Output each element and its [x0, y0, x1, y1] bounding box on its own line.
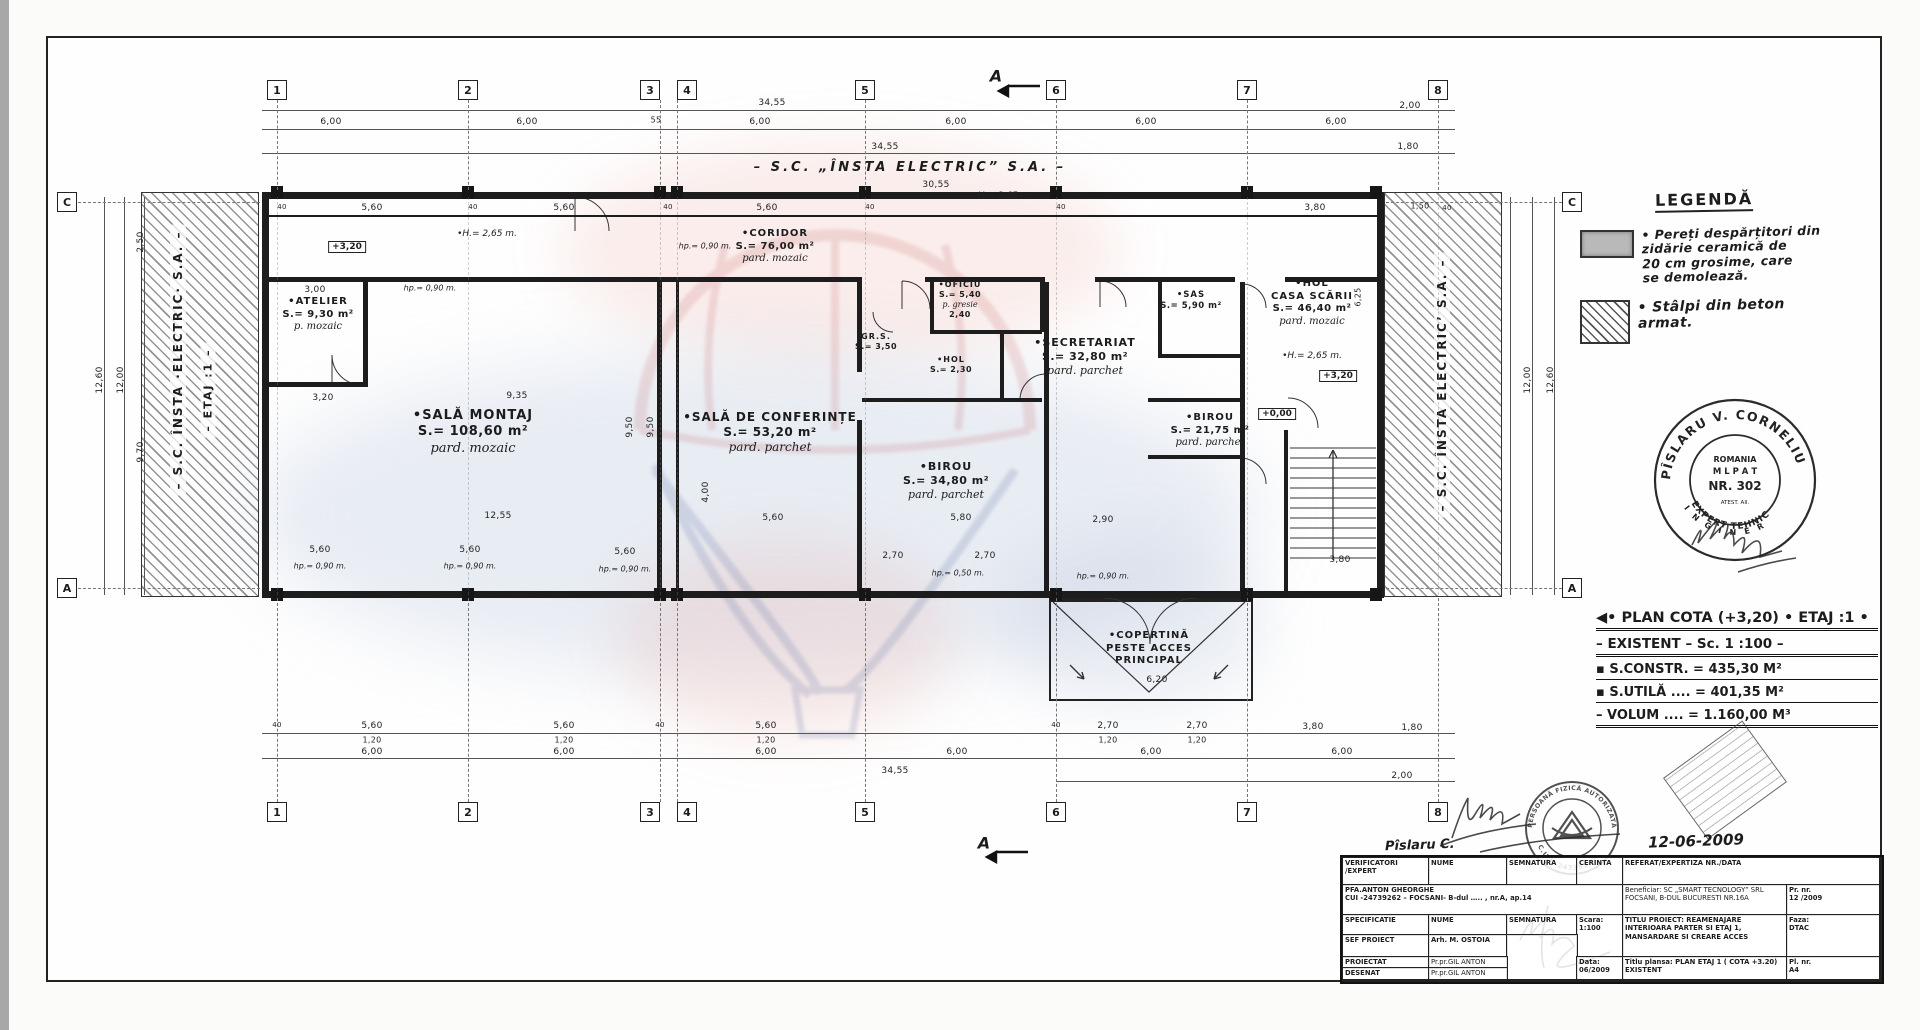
- room-label-line: S.= 108,60 m²: [413, 424, 533, 440]
- room-label-line: S.= 32,80 m²: [1034, 350, 1135, 364]
- room-label-line: pard. mozaic: [736, 253, 815, 266]
- legend-demolish-wall-swatch: [1580, 230, 1634, 258]
- grid-bubble-bottom: 7: [1237, 802, 1257, 822]
- room-label-line: •SALĂ DE CONFERINȚE: [683, 410, 857, 425]
- room-label: GR.S.S.= 3,50: [855, 332, 897, 352]
- top-company-label: – S.C. „ÎNSTA ELECTRIC” S.A. –: [620, 160, 1200, 175]
- dimension-label: 5,60: [614, 547, 635, 557]
- level-marker: +0,00: [1258, 408, 1296, 420]
- title-block-cell: DESENAT: [1342, 967, 1430, 980]
- dimension-label: 5,80: [950, 513, 971, 523]
- grid-extension-line: [1438, 100, 1439, 190]
- title-block-cell: Pl. nr. A4: [1786, 956, 1880, 980]
- grid-bubble-bottom: 6: [1046, 802, 1066, 822]
- dimension-label: 2,70: [1186, 721, 1207, 731]
- dimension-label: 6,00: [320, 117, 341, 127]
- room-label-line: S.= 9,30 m²: [282, 309, 353, 322]
- grid-letter-bubble: A: [1562, 578, 1582, 598]
- grid-extension-line: [865, 100, 866, 190]
- grid-letter-bubble: A: [57, 578, 77, 598]
- room-label-line: •CORIDOR: [736, 228, 815, 241]
- dimension-label: 5,60: [459, 545, 480, 555]
- grid-letter-bubble: C: [1562, 192, 1582, 212]
- dimension-line: [262, 110, 1455, 111]
- dimension-label: 40: [663, 203, 673, 211]
- grid-bubble-top: 2: [458, 80, 478, 100]
- grid-bubble-bottom: 2: [458, 802, 478, 822]
- title-block-cell: NUME: [1428, 914, 1508, 936]
- title-block-cell: SEF PROIECT: [1342, 934, 1430, 958]
- room-label-line: CASA SCĂRII: [1271, 291, 1353, 304]
- grid-extension-line: [1438, 598, 1439, 802]
- dimension-label: 5,60: [756, 203, 777, 213]
- dimension-label: 2,90: [1092, 515, 1113, 525]
- dimension-label: 40: [468, 203, 478, 211]
- dimension-label: 2,50: [136, 231, 146, 252]
- dimension-label: 3,80: [1329, 555, 1350, 565]
- room-label: •SALĂ MONTAJS.= 108,60 m²pard. mozaic: [413, 408, 533, 457]
- dimension-label: 3,20: [312, 393, 333, 403]
- wall-segment: [930, 282, 934, 332]
- dimension-label: 5,60: [361, 203, 382, 213]
- title-block-cell: Data: 06/2009: [1576, 956, 1624, 980]
- legend: LEGENDĂ • Pereți despărțitori din zidări…: [1580, 190, 1880, 344]
- dimension-label: 34,55: [871, 142, 898, 152]
- grid-bubble-bottom: 4: [677, 802, 697, 822]
- grid-bubble-bottom: 3: [640, 802, 660, 822]
- dimension-label: 6,00: [1135, 117, 1156, 127]
- grid-extension-line: [468, 598, 469, 802]
- grid-center-line: [677, 197, 678, 595]
- column-marker: [1370, 186, 1382, 199]
- dimension-line: [1056, 781, 1455, 782]
- right-strip-label: – S.C. ÎNSTA ELECTRIC’ S.A. –: [1434, 253, 1450, 518]
- room-label-line: S.= 46,40 m²: [1271, 303, 1353, 316]
- room-label-line: •ATELIER: [282, 296, 353, 309]
- room-label: •HOLS.= 2,30: [930, 355, 972, 375]
- room-label: •SECRETARIATS.= 32,80 m²pard. parchet: [1034, 336, 1135, 377]
- room-label-line: •SAS: [1160, 290, 1221, 301]
- title-block-cell: SPECIFICATIE: [1342, 914, 1430, 936]
- dimension-label: 6,00: [1140, 747, 1161, 757]
- room-label-line: •BIROU: [1171, 412, 1250, 425]
- wall-segment: [1000, 330, 1004, 400]
- dimension-label: 5,60: [755, 721, 776, 731]
- height-note: hp.= 0,90 m.: [1077, 572, 1130, 581]
- grid-bubble-bottom: 1: [267, 802, 287, 822]
- wall-segment: [1158, 354, 1242, 358]
- title-block-cell: Titlu plansa: PLAN ETAJ 1 ( COTA +3.20) …: [1622, 956, 1788, 980]
- section-marker-bottom: A: [978, 834, 990, 853]
- svg-text:ATEST. AII.: ATEST. AII.: [1721, 500, 1750, 506]
- wall-segment: [930, 330, 1042, 334]
- title-block-cell: Arh. M. OSTOIA: [1428, 934, 1508, 958]
- grid-extension-line: [277, 598, 278, 802]
- title-block-cell: VERIFICATORI /EXPERT: [1342, 857, 1430, 886]
- height-note: hp.= 0,90 m.: [679, 242, 732, 251]
- dimension-label: 40: [1442, 204, 1452, 212]
- wall-segment: [262, 192, 269, 598]
- plan-title: ◀• PLAN COTA (+3,20) • ETAJ :1 •: [1596, 610, 1878, 631]
- dimension-label: 6,00: [755, 747, 776, 757]
- grid-bubble-top: 8: [1428, 80, 1448, 100]
- title-block-cell: Beneficiar: SC „SMART TECNOLOGY” SRL FOC…: [1622, 884, 1788, 916]
- drawing-sheet: – S.C. ÎNSTA ·ELECTRIC· S.A. – – ETAJ :1…: [0, 0, 1920, 1030]
- dimension-label: 12,00: [116, 366, 126, 393]
- wall-segment: [1377, 192, 1384, 598]
- room-label-line: pard. parchet: [903, 488, 989, 502]
- title-block-cell: NUME: [1428, 857, 1508, 886]
- dimension-label: 55: [651, 116, 662, 125]
- section-marker-top: A: [990, 67, 1002, 86]
- dimension-label: 1,20: [554, 736, 573, 745]
- grid-bubble-bottom: 8: [1428, 802, 1448, 822]
- dimension-label: 6,00: [553, 747, 574, 757]
- wall-segment: [262, 591, 1384, 598]
- handwritten-date: 12-06-2009: [1648, 830, 1745, 851]
- dimension-label: 6,00: [1331, 747, 1352, 757]
- dimension-label: 40: [272, 721, 282, 729]
- dimension-label: 12,60: [1546, 366, 1556, 393]
- dimension-line: [262, 758, 1455, 759]
- grid-extension-line: [1247, 100, 1248, 190]
- wall-segment: [862, 398, 1042, 402]
- dimension-line: [104, 197, 105, 595]
- dimension-label: 3,00: [304, 285, 325, 295]
- dimension-line: [1554, 197, 1555, 595]
- title-block-cell: CERINTA: [1576, 857, 1624, 886]
- grid-extension-line: [277, 100, 278, 190]
- wall-segment: [1284, 430, 1288, 598]
- dimension-label: 6,00: [946, 747, 967, 757]
- expert-stamp: PÎSLARU V. CORNELIU I N G I N E R EXPERT…: [1650, 392, 1820, 562]
- grid-extension-line: [1386, 588, 1562, 589]
- room-label-line: •BIROU: [903, 460, 989, 474]
- grid-extension-line: [78, 202, 260, 203]
- room-label-line: S.= 53,20 m²: [683, 425, 857, 440]
- dimension-label: 6,00: [945, 117, 966, 127]
- room-label-line: S.= 3,50: [855, 342, 897, 352]
- title-block-cell: Scara: 1:100: [1576, 914, 1624, 958]
- room-label-line: 2,40: [939, 310, 982, 320]
- grid-bubble-top: 5: [855, 80, 875, 100]
- plan-subtitle: – EXISTENT – Sc. 1 :100 –: [1596, 636, 1878, 657]
- scan-edge: [0, 0, 9, 1030]
- left-strip-label: – S.C. ÎNSTA ·ELECTRIC· S.A. –: [170, 224, 186, 495]
- room-label: •BIROUS.= 21,75 m²pard. parchet: [1171, 412, 1250, 450]
- dimension-label: 40: [655, 721, 665, 729]
- level-marker: +3,20: [1319, 370, 1357, 382]
- dimension-label: 40: [1056, 203, 1066, 211]
- dimension-label: 2,00: [1399, 101, 1420, 111]
- grid-bubble-bottom: 5: [855, 802, 875, 822]
- dimension-label: 34,55: [758, 98, 785, 108]
- dimension-label: 1,20: [1098, 736, 1117, 745]
- grid-extension-line: [78, 588, 260, 589]
- legend-concrete-column-swatch: [1580, 300, 1630, 344]
- room-label-line: pard. parchet: [1034, 364, 1135, 378]
- wall-segment: [1044, 282, 1049, 598]
- dimension-line: [124, 197, 125, 595]
- wall-segment: [262, 215, 1384, 217]
- grid-extension-line: [468, 100, 469, 190]
- title-block-cell: Faza: DTAC: [1786, 914, 1880, 958]
- room-label: •HOLCASA SCĂRIIS.= 46,40 m²pard. mozaic: [1271, 278, 1353, 328]
- wall-segment: [857, 282, 862, 372]
- dimension-label: 40: [1051, 721, 1061, 729]
- dimension-label: 40: [277, 203, 287, 211]
- dimension-line: [1532, 197, 1533, 595]
- wall-segment: [1095, 277, 1235, 282]
- height-note: hp.= 0,90 m.: [404, 284, 457, 293]
- dimension-label: 2,70: [974, 551, 995, 561]
- dimension-label: 5,60: [553, 721, 574, 731]
- wall-segment: [1148, 398, 1244, 402]
- dimension-label: 5,60: [361, 721, 382, 731]
- dimension-label: 6,00: [749, 117, 770, 127]
- dimension-label: 34,55: [881, 766, 908, 776]
- dimension-label: 4,00: [701, 481, 711, 502]
- room-label-line: S.= 5,90 m²: [1160, 301, 1221, 312]
- room-label: •OFICIUS.= 5,40p. gresie2,40: [939, 280, 982, 320]
- room-label-line: •OFICIU: [939, 280, 982, 290]
- room-label-line: pard. parchet: [1171, 437, 1250, 450]
- grid-extension-line: [1247, 598, 1248, 802]
- title-block-cell: Pr.pr.GIL ANTON: [1428, 967, 1508, 980]
- dimension-label: 6,20: [1146, 675, 1167, 685]
- grid-center-line: [1247, 197, 1248, 595]
- room-label-line: S.= 21,75 m²: [1171, 425, 1250, 438]
- dimension-line: [144, 197, 145, 595]
- grid-bubble-top: 3: [640, 80, 660, 100]
- room-label: •SALĂ DE CONFERINȚES.= 53,20 m²pard. par…: [683, 410, 857, 455]
- grid-extension-line: [1056, 100, 1057, 190]
- dimension-label: 1,80: [1401, 723, 1422, 733]
- room-label-line: p. gresie: [939, 300, 982, 310]
- room-label-line: •SECRETARIAT: [1034, 336, 1135, 350]
- grid-center-line: [1056, 197, 1057, 595]
- plan-sutila: ▪ S.UTILĂ .... = 401,35 M²: [1596, 680, 1878, 703]
- dimension-line: [262, 129, 1455, 130]
- plan-title-block: ◀• PLAN COTA (+3,20) • ETAJ :1 • – EXIST…: [1596, 610, 1878, 728]
- dimension-label: 40: [865, 203, 875, 211]
- grid-bubble-top: 1: [267, 80, 287, 100]
- dimension-line: [262, 153, 1455, 154]
- svg-text:NR. 302: NR. 302: [1708, 479, 1761, 493]
- dimension-label: 1,80: [1397, 142, 1418, 152]
- grid-center-line: [865, 197, 866, 595]
- height-note: •H.= 2,65 m.: [457, 229, 517, 239]
- dimension-label: 2,00: [1391, 771, 1412, 781]
- grid-center-line: [1438, 197, 1439, 595]
- room-label-line: S.= 76,00 m²: [736, 241, 815, 254]
- room-label: •BIROUS.= 34,80 m²pard. parchet: [903, 460, 989, 501]
- room-label-line: S.= 5,40: [939, 290, 982, 300]
- room-label-line: pard. mozaic: [1271, 316, 1353, 329]
- dimension-label: 3,80: [1304, 203, 1325, 213]
- grid-extension-line: [1056, 598, 1057, 802]
- left-strip-etaj-label: – ETAJ :1 –: [201, 342, 216, 437]
- title-block-cell: TITLU PROIECT: REAMENAJARE INTERIOARA PA…: [1622, 914, 1788, 958]
- level-marker: +3,20: [328, 241, 366, 253]
- dimension-label: 5,60: [553, 203, 574, 213]
- dimension-label: 12,00: [1523, 366, 1533, 393]
- dimension-label: 2,70: [882, 551, 903, 561]
- room-label-line: GR.S.: [855, 332, 897, 342]
- grid-extension-line: [865, 598, 866, 802]
- room-label-line: •HOL: [930, 355, 972, 365]
- room-label-line: S.= 34,80 m²: [903, 474, 989, 488]
- dimension-label: 30,55: [922, 180, 949, 190]
- dimension-label: 5,60: [762, 513, 783, 523]
- svg-text:M L P A T: M L P A T: [1713, 467, 1758, 477]
- height-note: hp.= 0,90 m.: [294, 562, 347, 571]
- dimension-label: 1,20: [362, 736, 381, 745]
- svg-text:ROMANIA: ROMANIA: [1714, 455, 1758, 464]
- height-note: hp.= 0,90 m.: [444, 562, 497, 571]
- room-label: •ATELIERS.= 9,30 m²p. mozaic: [282, 296, 353, 334]
- wall-segment: [269, 277, 862, 282]
- dimension-label: 12,60: [95, 366, 105, 393]
- dimension-label: 2,70: [1097, 721, 1118, 731]
- column-marker: [1370, 588, 1382, 601]
- dimension-label: 6,00: [1325, 117, 1346, 127]
- grid-extension-line: [677, 598, 678, 802]
- dimension-label: 1,20: [756, 736, 775, 745]
- copertina-label: •COPERTINĂ PESTE ACCES PRINCIPAL: [1106, 630, 1192, 668]
- dimension-label: 9,50: [625, 416, 635, 437]
- handwritten-verifier-name: Pîslaru C.: [1385, 837, 1455, 854]
- dimension-label: 5,60: [309, 545, 330, 555]
- legend-item-1: • Pereți despărțitori din zidărie cerami…: [1641, 224, 1822, 286]
- title-block-cell: PFA.ANTON GHEORGHE CUI -24739262 – FOCSA…: [1342, 884, 1624, 916]
- room-label-line: •HOL: [1271, 278, 1353, 291]
- dimension-label: 9,35: [506, 391, 527, 401]
- title-block-cell: SEMNATURA: [1506, 857, 1578, 886]
- dimension-label: 9,70: [136, 441, 146, 462]
- room-label-line: p. mozaic: [282, 321, 353, 334]
- dimension-label: 6,00: [361, 747, 382, 757]
- title-block-cell: [1506, 934, 1578, 980]
- legend-item-2: • Stâlpi din beton armat.: [1637, 296, 1785, 346]
- title-block-cell: Pr. nr. 12 /2009: [1786, 884, 1880, 916]
- height-note: H.= 2,65 m.: [978, 191, 1033, 201]
- room-label-line: pard. mozaic: [413, 441, 533, 457]
- room-label: •CORIDORS.= 76,00 m²pard. mozaic: [736, 228, 815, 266]
- room-label: •SASS.= 5,90 m²: [1160, 290, 1221, 311]
- dimension-label: 6,25: [1354, 287, 1363, 306]
- wall-segment: [363, 277, 368, 387]
- grid-center-line: [660, 197, 661, 595]
- grid-extension-line: [677, 100, 678, 190]
- title-block-cell: SEMNATURA: [1506, 914, 1578, 936]
- dimension-label: 6,00: [516, 117, 537, 127]
- dimension-line: [1510, 197, 1511, 595]
- grid-bubble-top: 7: [1237, 80, 1257, 100]
- wall-segment: [262, 192, 1384, 199]
- room-label-line: •SALĂ MONTAJ: [413, 408, 533, 424]
- height-note: hp.= 0,50 m.: [932, 569, 985, 578]
- dimension-label: 3,80: [1302, 722, 1323, 732]
- room-label-line: S.= 2,30: [930, 365, 972, 375]
- dimension-label: 12,55: [484, 511, 511, 521]
- grid-center-line: [277, 197, 278, 595]
- dimension-label: 1,50: [1410, 202, 1429, 211]
- height-note: •H.= 2,65 m.: [1282, 351, 1342, 361]
- dimension-label: 1,20: [1187, 736, 1206, 745]
- grid-extension-line: [660, 598, 661, 802]
- grid-bubble-top: 4: [677, 80, 697, 100]
- room-label-line: pard. parchet: [683, 440, 857, 455]
- legend-title: LEGENDĂ: [1655, 189, 1754, 213]
- grid-extension-line: [660, 100, 661, 190]
- height-note: hp.= 0,90 m.: [599, 565, 652, 574]
- wall-segment: [857, 420, 862, 598]
- dimension-line: [262, 733, 1455, 734]
- grid-bubble-top: 6: [1046, 80, 1066, 100]
- plan-sconstr: ▪ S.CONSTR. = 435,30 M²: [1596, 657, 1878, 680]
- grid-letter-bubble: C: [57, 192, 77, 212]
- wall-segment: [1148, 455, 1244, 459]
- dimension-label: 9,50: [646, 416, 656, 437]
- grid-center-line: [468, 197, 469, 595]
- title-block-cell: REFERAT/EXPERTIZA NR./DATA: [1622, 857, 1880, 886]
